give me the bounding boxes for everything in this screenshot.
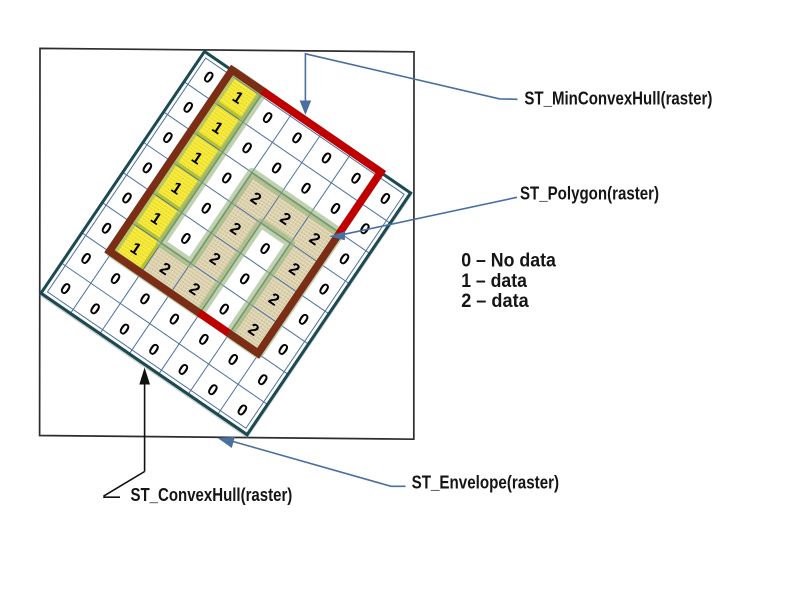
svg-text:0 – No data: 0 – No data	[461, 250, 556, 271]
svg-text:ST_ConvexHull(raster): ST_ConvexHull(raster)	[131, 485, 293, 505]
svg-text:ST_MinConvexHull(raster): ST_MinConvexHull(raster)	[524, 88, 712, 108]
svg-text:ST_Polygon(raster): ST_Polygon(raster)	[520, 183, 659, 203]
svg-text:1 – data: 1 – data	[461, 271, 527, 292]
svg-text:ST_Envelope(raster): ST_Envelope(raster)	[412, 473, 560, 493]
svg-text:2 – data: 2 – data	[461, 291, 529, 312]
